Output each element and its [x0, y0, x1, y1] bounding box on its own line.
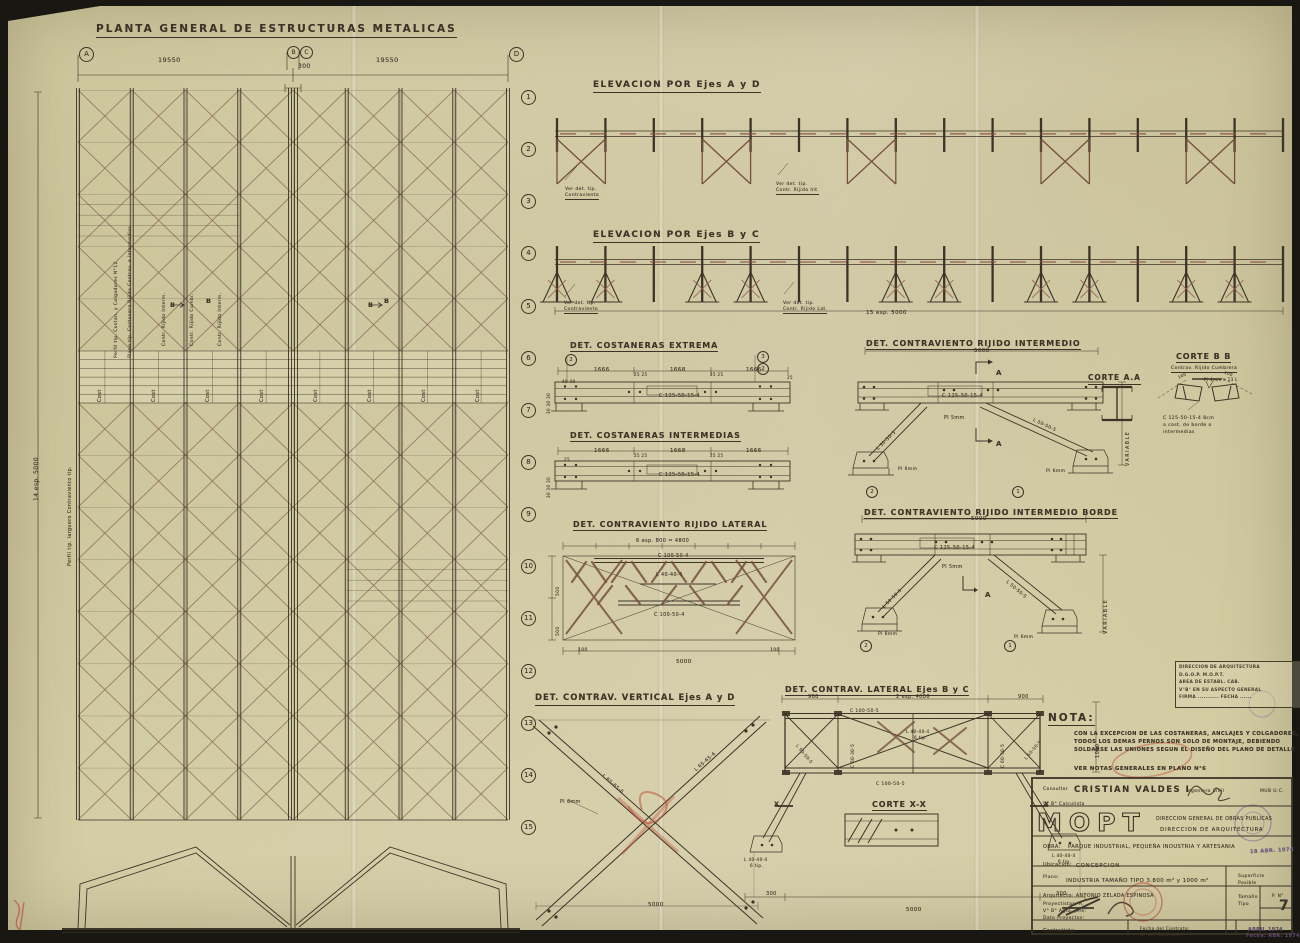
row-marker: 10: [521, 559, 536, 574]
axis-marker-c: C: [300, 46, 313, 59]
dim-small: 100: [770, 648, 780, 653]
nota-line: SOLDARSE LAS UNIONES SEGUN EL DISEÑO DEL…: [1074, 748, 1295, 754]
dim: 6 esp. 800 = 4800: [636, 539, 689, 545]
det-contraviento-borde: [852, 515, 1107, 633]
elevation-bc: [540, 246, 1283, 315]
dim-side: 500: [556, 626, 561, 636]
det-cost-intermedias-title: DET. COSTANERAS INTERMEDIAS: [570, 431, 741, 442]
det-cv-vertical-title: DET. CONTRAV. VERTICAL Ejes A y D: [535, 694, 735, 706]
member-label: C 60-30-5: [851, 744, 856, 768]
dim: 5000: [974, 348, 990, 354]
mark-circle: 3: [757, 351, 769, 363]
plan-dim-center: 300: [298, 64, 311, 71]
dim: 1668: [670, 448, 686, 454]
consultor-role: Ingeniero Civil: [1186, 789, 1224, 794]
plan-dim-left: 19550: [158, 57, 181, 64]
corte-aa-title: CORTE A.A: [1088, 374, 1141, 385]
plan-annotation: Perfil tip. Costan. y Colgadores N°12: [114, 261, 119, 358]
plan-annotation: Contr. Ríjido Cumbr.: [190, 293, 195, 346]
elev-note: Ver det. tip.: [783, 301, 815, 306]
nota-line: CON LA EXCEPCION DE LAS COSTANERAS, ANCL…: [1074, 732, 1298, 738]
date-value: Fecha: ABR. 1974: [1246, 934, 1300, 940]
elev-note: Contr. Ríjido Int.: [776, 188, 819, 195]
dim-small: 25 25: [634, 454, 647, 459]
corte-bb-note: intermedias: [1163, 430, 1195, 435]
cost-label: Cost: [152, 389, 158, 402]
elev-note: Ver det. tip.: [565, 187, 597, 192]
section-b-marker: B: [206, 298, 211, 305]
superficie-label: Superficie: [1238, 874, 1265, 879]
row-marker: 1: [521, 90, 536, 105]
profile-label: C 100-50-4: [658, 554, 689, 560]
elev-note: Contraviento: [565, 193, 599, 200]
det-cost-extrema-title: DET. COSTANERAS EXTREMA: [570, 341, 718, 352]
dim: 5000: [906, 907, 922, 913]
det-cr-lateral-title: DET. CONTRAVIENTO RIJIDO LATERAL: [573, 520, 767, 531]
dim: 5000: [648, 902, 664, 908]
dim: 5000: [971, 516, 987, 522]
profile-label: C 100-50-4: [654, 613, 685, 619]
cost-label: Cost: [98, 389, 104, 402]
plan-annotation: Plano tip. Costanera Ríjida Contrav. e i…: [128, 226, 133, 358]
drawing-linework: MOPT: [8, 6, 1300, 943]
mark-circle: 2: [866, 486, 878, 498]
elev-note: Ver det. tip.: [776, 182, 808, 187]
dim: 1668: [670, 367, 686, 373]
nota-line: TODOS LOS DEMAS PERNOS SON SOLO DE MONTA…: [1074, 740, 1280, 746]
cost-label: Cost: [422, 389, 428, 402]
row-marker: 2: [521, 142, 536, 157]
profile-label: C 100-50-5: [876, 782, 905, 787]
row-marker: 3: [521, 194, 536, 209]
row-marker: 13: [521, 716, 536, 731]
dim: 900: [1018, 695, 1029, 701]
plan-left-note: Perfil tip. larguero Contraviento tip.: [68, 466, 74, 566]
plan-left-dim: 14 esp. 5000: [34, 457, 41, 501]
num-contrato: N° del Contrato: [1140, 934, 1179, 939]
dim-small: 25 25: [710, 454, 723, 459]
mopt-logo: MOPT: [1037, 808, 1147, 837]
profile-label: C 100-50-5: [850, 709, 879, 714]
consultor-univ: MUB U.C.: [1260, 789, 1284, 794]
plano-number: 7: [1279, 898, 1289, 914]
blueprint-sheet: MOPT PLANTA GENERAL DE ESTRUCTURAS METAL…: [8, 6, 1292, 930]
plan-title: PLANTA GENERAL DE ESTRUCTURAS METALICAS: [96, 23, 457, 38]
plate-label: Pl 6mm: [898, 467, 917, 472]
elevation-bc-title: ELEVACION POR Ejes B y C: [593, 230, 760, 243]
member-label: C 60-30-5: [1001, 744, 1006, 768]
cost-label: Cost: [314, 389, 320, 402]
tamano-label: Tamaño: [1238, 895, 1258, 900]
dim-variable: VARIABLE: [1126, 431, 1132, 466]
plate-label: Pl 6mm: [1046, 469, 1065, 474]
section-x-marker: X: [774, 801, 779, 808]
det-cr-borde-title: DET. CONTRAVIENTO RIJIDO INTERMEDIO BORD…: [864, 508, 1118, 519]
mark-circle: 2: [757, 363, 769, 375]
dim-small: 25: [564, 458, 570, 463]
dim-small: 100: [578, 648, 588, 653]
det-contrav-vertical: [532, 716, 770, 926]
blueprint-scan: MOPT PLANTA GENERAL DE ESTRUCTURAS METAL…: [0, 0, 1300, 943]
member-label: 6 tip.: [750, 864, 763, 869]
nota-heading: NOTA:: [1048, 712, 1095, 726]
det-contraviento-intermedio: [848, 347, 1126, 475]
obra-label: OBRA:: [1043, 845, 1061, 851]
section-a-marker: A: [996, 440, 1002, 448]
axis-marker-d: D: [509, 47, 524, 62]
dim-small: 40 40: [562, 380, 575, 385]
row-marker: 11: [521, 611, 536, 626]
plate-label: Pl 6mm: [560, 800, 581, 806]
dept-line2: DIRECCION DE ARQUITECTURA: [1160, 827, 1263, 833]
vobo2-line: V° B° Agto. jefe:: [1043, 909, 1086, 914]
profile-label: C 125-50-15-4: [659, 394, 700, 400]
row-marker: 7: [521, 403, 536, 418]
nota-see-also: VER NOTAS GENERALES EN PLANO N°6: [1074, 766, 1206, 772]
elevation-ad: [555, 118, 1283, 184]
consultor-name: CRISTIAN VALDES I: [1074, 786, 1190, 796]
plate-label: Pl 5mm: [944, 416, 965, 422]
cost-label: Cost: [476, 389, 482, 402]
plan-dim-right: 19550: [376, 57, 399, 64]
plan-grid: [34, 52, 520, 933]
ubicacion-value: CONCEPCION: [1076, 863, 1120, 869]
profile-label: C 125-50-15-4: [942, 394, 983, 400]
plate-label: Pl 6mm: [1014, 635, 1033, 640]
arquitecto-line: Arquitecto: ANTONIO ZELADA ESPINOSA: [1043, 894, 1154, 900]
obra-value: PARQUE INDUSTRIAL, PEQUEÑA INDUSTRIA Y A…: [1068, 845, 1235, 851]
member-label: 6 tip.: [914, 736, 927, 741]
corte-xx-title: CORTE X-X: [872, 800, 927, 811]
corte-bb-note: C 125-50-15-4 8cm: [1163, 416, 1214, 421]
architecture-stamp: DIRECCION DE ARQUITECTURA D.G.O.P. M.O.P…: [1175, 661, 1300, 708]
cost-label: Cost: [260, 389, 266, 402]
dim: 1666: [594, 448, 610, 454]
row-marker: 12: [521, 664, 536, 679]
dim-side: 30 30 30: [547, 393, 552, 414]
plan-annotation: Contr. Ríjido Interm.: [218, 293, 223, 346]
det-contrav-lateral-bc: [745, 695, 1100, 901]
row-marker: 15: [521, 820, 536, 835]
stamp-line: V°B° EN SU ASPECTO GENERAL: [1179, 687, 1298, 695]
section-a-marker: A: [985, 591, 991, 599]
date-value: ABRIL 1974: [1248, 928, 1283, 934]
dim-side: 30 30 30: [547, 477, 552, 498]
row-marker: 4: [521, 246, 536, 261]
elev-note: Contr. Ríjido Lat.: [783, 307, 827, 314]
cost-label: Cost: [368, 389, 374, 402]
elev-bc-dim: 15 esp. 5000: [866, 310, 907, 316]
dim-side: 500: [556, 586, 561, 596]
profile-label: C 125-50-15-4: [934, 546, 975, 552]
corte-bb-note: a cost. de borde o: [1163, 423, 1212, 428]
dim: 5000: [676, 659, 692, 665]
section-b-marker: B: [368, 302, 373, 309]
mark-circle: 1: [1012, 486, 1024, 498]
stamp-line: FIRMA ........... FECHA ......: [1179, 694, 1298, 702]
det-costaneras-extrema: [551, 355, 790, 411]
elev-note: Ver det. tip.: [564, 301, 596, 306]
plate-label: Pl 5mm: [942, 565, 963, 571]
vobo-calculista: V° B° Calculista: [1043, 802, 1085, 807]
profile-label: L 40-40-4: [656, 573, 683, 579]
dim-small: 25 25: [710, 373, 723, 378]
corte-bb-sketch: [1158, 378, 1252, 410]
tamano-label: Tipo: [1238, 902, 1249, 907]
dim-small: 25 25: [634, 373, 647, 378]
consultor-label: Consultor: [1043, 787, 1068, 792]
cost-label: Cost: [206, 389, 212, 402]
mark-circle: 2: [860, 640, 872, 652]
section-b-marker: B: [170, 302, 175, 309]
stamp-line: DIRECCION DE ARQUITECTURA: [1179, 664, 1298, 672]
plano-value: INDUSTRIA TAMAÑO TIPO 3.800 m² y 1000 m²: [1066, 878, 1209, 884]
stamp-line: D.G.O.P. M.O.P.T.: [1179, 672, 1298, 680]
row-marker: 6: [521, 351, 536, 366]
elevation-ad-title: ELEVACION POR Ejes A y D: [593, 80, 761, 93]
corte-xx-sketch: [845, 814, 938, 846]
mark-circle: 1: [1004, 640, 1016, 652]
dim: 1666: [594, 367, 610, 373]
mark-circle: 2: [565, 354, 577, 366]
superficie-label: Posible: [1238, 881, 1257, 886]
dim-variable: VARIABLE: [1104, 599, 1110, 634]
plan-annotation: Contr. Ríjido Interm.: [162, 293, 167, 346]
axis-marker-a: A: [79, 47, 94, 62]
ubicacion-label: Ubicacion:: [1043, 863, 1072, 869]
profile-label: C 125-50-15-4: [659, 473, 700, 479]
contratista-label: Contratista:: [1043, 929, 1076, 935]
corte-bb-title: CORTE B B: [1176, 352, 1231, 363]
plate-label: Pl 4mm e 13 L: [1204, 378, 1238, 383]
dato-line: Dato Proyectos:: [1043, 916, 1085, 921]
row-marker: 9: [521, 507, 536, 522]
dim: 1666: [746, 448, 762, 454]
axis-marker-b: B: [287, 46, 300, 59]
plate-label: Pl 6mm: [878, 632, 897, 637]
row-marker: 14: [521, 768, 536, 783]
elev-note: Contraviento: [564, 307, 598, 314]
plano-label: Plano:: [1043, 875, 1059, 880]
corte-aa-symbol: [1102, 387, 1132, 420]
section-b-marker: B: [384, 298, 389, 305]
row-marker: 5: [521, 299, 536, 314]
proyectistas-line: Proyectistas: A.: [1043, 902, 1084, 907]
row-marker: 8: [521, 455, 536, 470]
section-a-marker: A: [996, 369, 1002, 377]
dept-line1: DIRECCION GENERAL DE OBRAS PUBLICAS: [1156, 817, 1272, 823]
dim-small: 25: [787, 376, 793, 381]
dim: 900: [808, 695, 819, 701]
dim: 2 esp. 4000: [896, 695, 930, 701]
stamp-line: AREA DE ESTABL. CAB.: [1179, 679, 1298, 687]
dim: 300: [766, 892, 777, 898]
